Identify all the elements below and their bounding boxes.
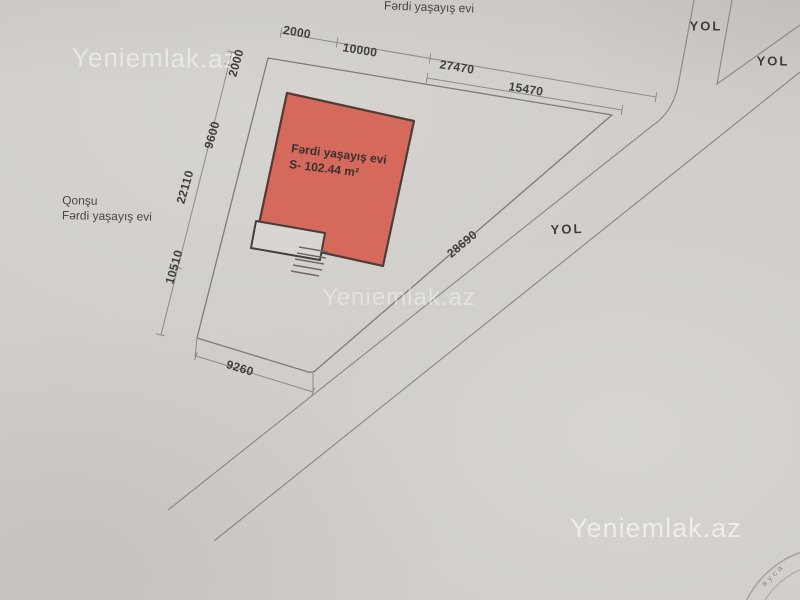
dim-line-left — [161, 52, 232, 335]
plot-boundary — [197, 58, 612, 372]
site-plan-photo: Yeniemlak.az Yeniemlak.az Yeniemlak.az F… — [0, 0, 800, 600]
watermark-bottom-right: Yeniemlak.az — [570, 513, 742, 544]
road-edge-north-and-main-upper — [168, 0, 694, 510]
road-label-north: YOL — [690, 19, 723, 34]
neighbor-label-line1: Qonşu — [62, 193, 152, 210]
road-edge-junction-v — [717, 0, 800, 84]
dim-line-bottom — [196, 356, 313, 392]
road-label-main: YOL — [550, 221, 583, 237]
watermark-center: Yeniemlak.az — [322, 284, 476, 312]
watermark-top-left: Yeniemlak.az — [72, 42, 238, 74]
neighbor-label-line2: Fərdi yaşayış evi — [62, 208, 152, 225]
neighbor-label: Qonşu Fərdi yaşayış evi — [62, 193, 153, 225]
road-label-northeast: YOL — [757, 54, 790, 69]
